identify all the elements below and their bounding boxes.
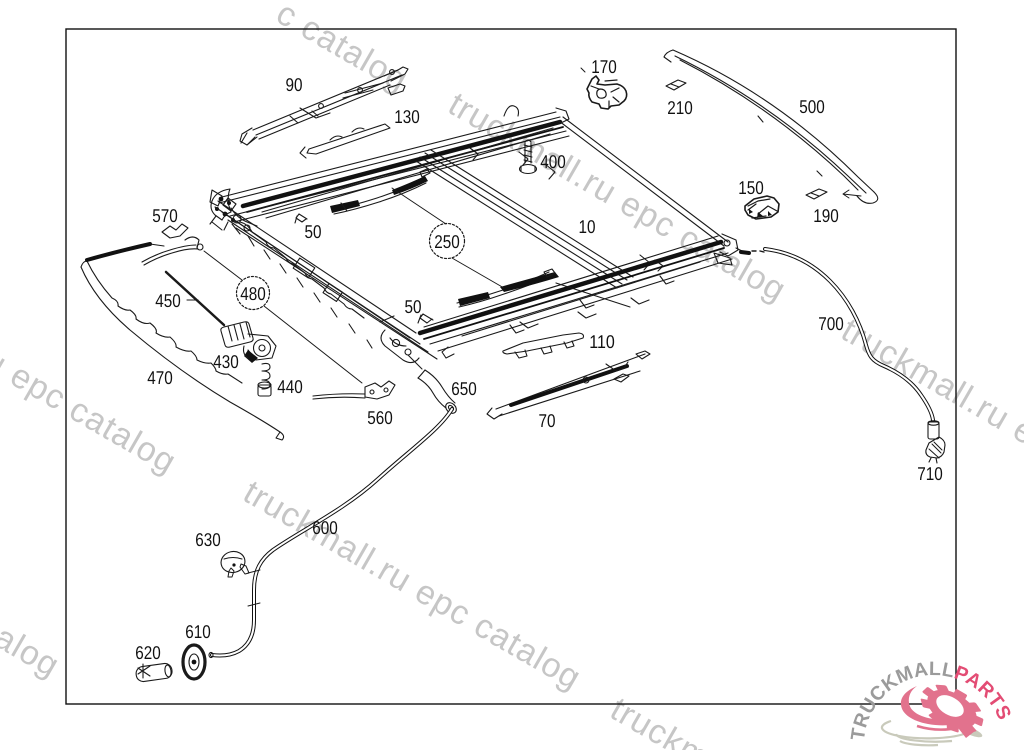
svg-text:620: 620 (135, 642, 161, 663)
svg-text:70: 70 (539, 410, 556, 431)
svg-text:400: 400 (540, 151, 566, 172)
svg-text:210: 210 (667, 97, 693, 118)
svg-text:650: 650 (451, 378, 477, 399)
svg-text:90: 90 (286, 74, 303, 95)
svg-text:610: 610 (185, 621, 211, 642)
svg-text:500: 500 (799, 96, 825, 117)
svg-text:430: 430 (213, 351, 239, 372)
svg-text:170: 170 (591, 56, 617, 77)
svg-text:130: 130 (394, 106, 420, 127)
svg-text:50: 50 (305, 221, 322, 242)
svg-text:560: 560 (367, 407, 393, 428)
svg-text:630: 630 (195, 529, 221, 550)
svg-text:450: 450 (155, 290, 181, 311)
svg-text:570: 570 (152, 205, 178, 226)
svg-text:470: 470 (147, 367, 173, 388)
svg-text:250: 250 (434, 231, 460, 252)
svg-text:190: 190 (813, 205, 839, 226)
svg-text:600: 600 (312, 517, 338, 538)
svg-text:110: 110 (589, 331, 615, 352)
svg-text:50: 50 (405, 296, 422, 317)
svg-text:10: 10 (579, 216, 596, 237)
svg-text:480: 480 (240, 283, 266, 304)
svg-text:440: 440 (277, 376, 303, 397)
svg-text:700: 700 (818, 313, 844, 334)
svg-text:150: 150 (738, 177, 764, 198)
svg-text:710: 710 (917, 463, 943, 484)
